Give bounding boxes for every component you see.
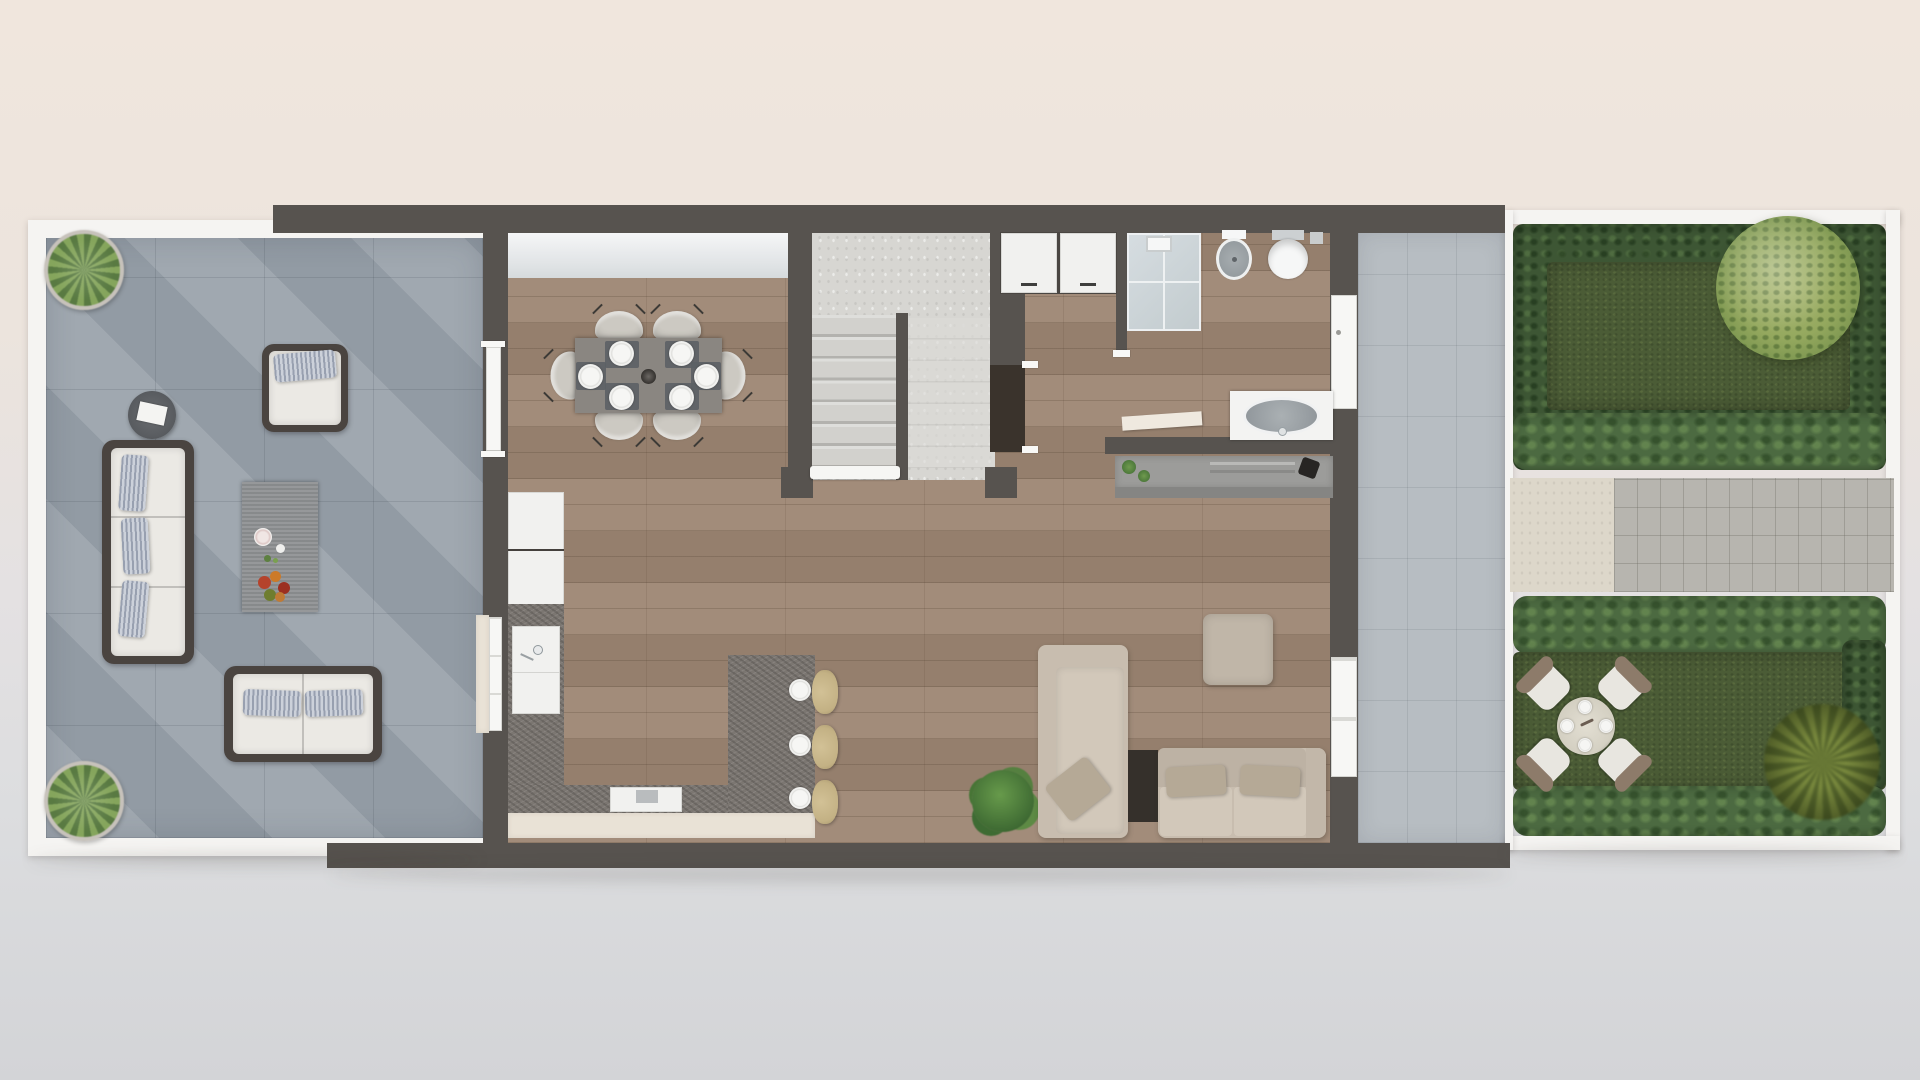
sink-seam (512, 672, 560, 673)
island-plate-3 (789, 787, 811, 809)
kitchen-slider-track (476, 615, 489, 733)
pouf (1203, 614, 1273, 685)
south-wall (327, 843, 1510, 868)
north-wall-face (507, 233, 788, 278)
center-bowl (641, 369, 656, 384)
building-shadow-south (330, 866, 1510, 882)
armchair-pillow (273, 349, 337, 382)
patio-door (1331, 657, 1357, 777)
dining-plate-5 (609, 385, 634, 410)
terrace-sofa-pillow-3 (118, 580, 150, 638)
sofa-pillow-right (1239, 764, 1300, 797)
terrace-dining-door (486, 347, 501, 451)
sink-unit (512, 626, 560, 714)
terrace-sofa-pillow-2 (121, 517, 151, 574)
hedge-row-upper (1513, 413, 1886, 470)
sofa-seats (1158, 748, 1326, 838)
sofa-pillow-left (1165, 764, 1226, 797)
understair-jamb-top (1022, 361, 1038, 368)
dining-plate-2 (669, 341, 694, 366)
planter-top (44, 230, 124, 310)
sofa-console (1128, 750, 1158, 822)
garden-fence-top (1505, 210, 1900, 224)
terrace-door-jamb-bottom (481, 451, 505, 457)
terrace-side-table (128, 391, 176, 439)
appliance-block (1000, 232, 1117, 294)
cooktop-module (610, 787, 682, 812)
sink-faucet (533, 645, 543, 655)
kitchen-sliding-door (489, 617, 502, 731)
garden-plate-e (1599, 719, 1613, 733)
terrace-coffee-table (242, 482, 318, 612)
bar-stool-1 (812, 670, 838, 714)
understair-doorway (990, 365, 1025, 452)
terrace-loveseat (224, 666, 382, 762)
flower-orange (270, 571, 281, 582)
table-green-2 (273, 558, 278, 563)
side-table-book (136, 401, 167, 425)
sofa-chaise (1038, 645, 1128, 838)
flower-bouquet (254, 570, 294, 606)
cooktop-hob (636, 790, 658, 803)
stair-divider-wall (896, 313, 908, 480)
dryer-handle (1080, 283, 1096, 286)
table-plate (254, 528, 272, 546)
dining-plate-1 (609, 341, 634, 366)
lounge-plant (972, 770, 1034, 832)
sideboard-vase (1297, 456, 1320, 479)
palm-shrub (1764, 704, 1880, 820)
dryer (1060, 233, 1116, 293)
stair-newel-right (985, 467, 1017, 498)
sofa-armrest (1306, 748, 1326, 838)
table-cup (276, 544, 285, 553)
front-door-handle (1336, 330, 1341, 335)
stair-flight-left (812, 315, 896, 468)
dining-plate-3 (578, 364, 603, 389)
terrace-sofa (102, 440, 194, 664)
sink-handle (520, 653, 534, 661)
path-pavers (1614, 478, 1894, 592)
kitchen-cabinet-face (508, 813, 815, 838)
sideboard-tray (1210, 462, 1295, 465)
terrace-shadow-south (30, 854, 480, 866)
path-concrete (1510, 478, 1614, 592)
flush-plate (1310, 232, 1323, 244)
bidet (1216, 230, 1253, 280)
washer (1001, 233, 1057, 293)
bar-stool-2 (812, 725, 838, 769)
understair-jamb-bottom (1022, 446, 1038, 453)
front-door (1331, 295, 1357, 409)
flower-red (258, 576, 271, 589)
vanity (1230, 391, 1333, 440)
floor-plan-rendering (0, 0, 1920, 1080)
garden-plate-w (1560, 719, 1574, 733)
table-green-1 (264, 555, 271, 562)
stair-newel-left (781, 467, 813, 498)
garden-tree (1716, 216, 1860, 360)
shower-tray (1127, 233, 1201, 331)
dining-plate-4 (694, 364, 719, 389)
sideboard-plant-1 (1122, 460, 1136, 474)
bathroom-west-jamb (1113, 350, 1130, 357)
dining-plate-6 (669, 385, 694, 410)
loveseat-pillow-2 (305, 689, 364, 717)
stair-flight-right (908, 318, 995, 468)
vanity-faucet (1278, 427, 1287, 436)
sideboard-front (1115, 487, 1333, 498)
flower-amber (275, 592, 285, 602)
side-passage-floor (1358, 233, 1505, 843)
garden-shadow-south (1505, 848, 1900, 860)
loveseat-pillow-1 (243, 689, 302, 717)
tall-cabinet-seam (508, 549, 564, 551)
tall-cabinets (508, 492, 564, 608)
garden-plate-n (1578, 700, 1592, 714)
shower-glass-line-h (1127, 281, 1201, 283)
sideboard-plant-2 (1138, 470, 1150, 482)
bidet-drain (1232, 257, 1237, 262)
garden-plate-s (1578, 738, 1592, 752)
terrace-sofa-pillow-1 (118, 454, 149, 512)
bar-stool-3 (812, 780, 838, 824)
toilet-bowl (1268, 239, 1308, 279)
island-plate-2 (789, 734, 811, 756)
island-plate-1 (789, 679, 811, 701)
bathroom-west-wall (1116, 232, 1127, 354)
washer-handle (1021, 283, 1037, 286)
stair-west-wall (788, 232, 812, 480)
west-wall (483, 233, 508, 843)
north-wall (273, 205, 1505, 233)
sideboard-tray-line (1210, 470, 1295, 473)
shower-head (1146, 236, 1172, 252)
hedge-row-lower (1513, 596, 1886, 654)
stair-railing (810, 466, 900, 479)
planter-bottom (44, 761, 124, 841)
toilet (1267, 230, 1309, 280)
sideboard (1115, 456, 1333, 489)
terrace-armchair (262, 344, 348, 432)
